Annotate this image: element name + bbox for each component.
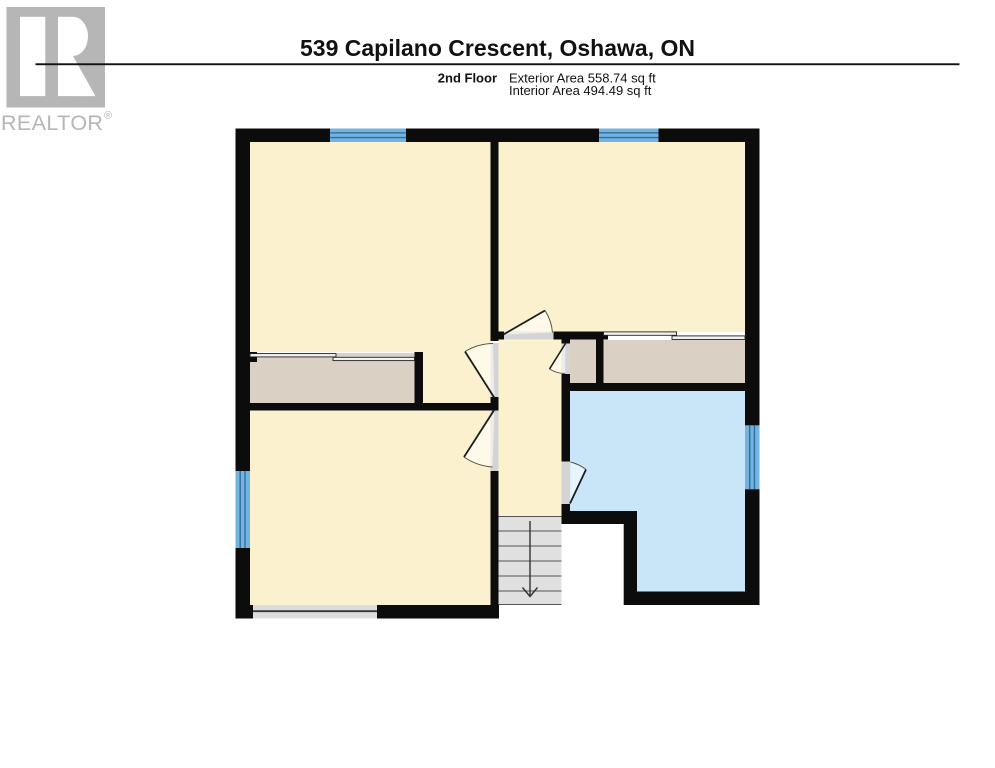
svg-text:REALTOR: REALTOR [1, 111, 103, 135]
svg-text:539 Capilano Crescent, Oshawa,: 539 Capilano Crescent, Oshawa, ON [300, 35, 695, 61]
svg-text:®: ® [104, 110, 112, 122]
svg-text:2nd Floor: 2nd Floor [438, 71, 497, 86]
svg-text:Interior Area 494.49 sq ft: Interior Area 494.49 sq ft [509, 83, 652, 98]
